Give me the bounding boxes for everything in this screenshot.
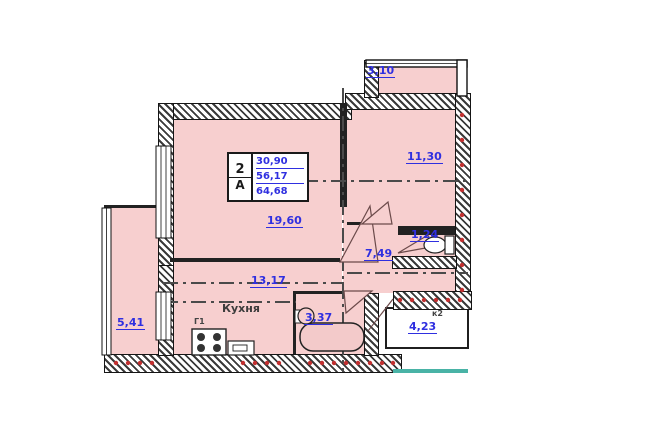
stamp-living-area: 30,90 [256, 156, 304, 169]
axis-line-v1 [342, 88, 344, 372]
mark-stove-g1: Г1 [194, 317, 205, 326]
wall-hall-bottom [393, 291, 472, 310]
dim-hall: 7,49 [364, 247, 393, 261]
floor-plan: 2 А 30,90 56,17 64,68 3,10 11,30 19,60 1… [0, 0, 650, 440]
wall-wc-bottom [392, 256, 457, 269]
wall-bottom [104, 354, 402, 373]
dim-bath: 3,37 [304, 311, 333, 325]
wall-balcony-left-top [104, 205, 160, 208]
wall-top-right [345, 93, 459, 110]
stamp-type-cell: 2 А [229, 154, 253, 200]
wall-top-main [158, 103, 352, 120]
room-hall-wc-fill [343, 207, 455, 293]
wall-bath-right [364, 293, 379, 356]
stamp-apartment-area: 56,17 [256, 171, 304, 184]
axis-line-h1 [303, 180, 468, 182]
wall-left-living [158, 103, 174, 267]
dim-wc: 1,24 [410, 228, 439, 242]
teal-shadow-line [393, 369, 468, 373]
axis-line-h3 [347, 272, 468, 274]
mark-k2: к2 [432, 309, 443, 318]
balcony-left-fill [110, 208, 158, 355]
dim-kitchen: 13,17 [250, 274, 287, 288]
kitchen-label: Кухня [222, 302, 260, 315]
dim-balcony-top: 3,10 [366, 64, 395, 78]
stamp-type-letter: А [229, 178, 251, 192]
stamp-rooms-count: 2 [229, 163, 251, 178]
wall-bedroom-hall [347, 222, 365, 225]
stamp-areas-cell: 30,90 56,17 64,68 [253, 154, 307, 200]
stamp-total-area: 64,68 [256, 186, 304, 198]
dim-living: 19,60 [266, 214, 303, 228]
wall-living-kitchen [170, 258, 340, 262]
wall-left-kitchen [158, 265, 174, 356]
wall-bath-top [293, 291, 365, 294]
dim-bedroom: 11,30 [406, 150, 443, 164]
apartment-stamp: 2 А 30,90 56,17 64,68 [227, 152, 309, 202]
dim-balcony-right: 4,23 [408, 320, 437, 334]
dim-balcony-left: 5,41 [116, 316, 145, 330]
